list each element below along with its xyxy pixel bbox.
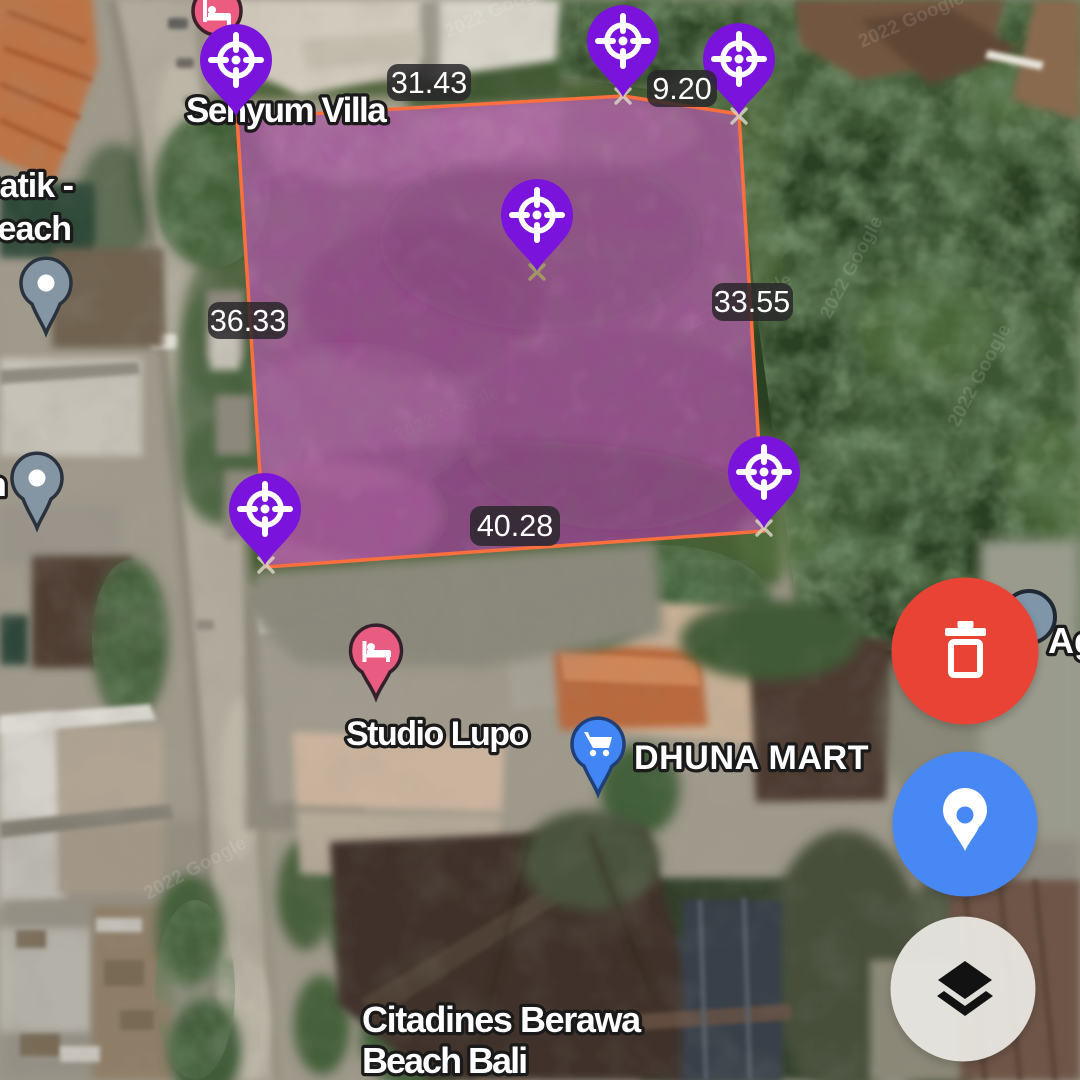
svg-text:9.20: 9.20	[652, 72, 711, 106]
svg-text:33.55: 33.55	[714, 285, 790, 319]
svg-text:n: n	[0, 466, 7, 504]
svg-text:DHUNA MART: DHUNA MART	[634, 739, 869, 777]
svg-text:Beach: Beach	[0, 210, 71, 248]
svg-text:31.43: 31.43	[391, 66, 467, 100]
svg-text:Citadines Berawa: Citadines Berawa	[362, 999, 642, 1040]
svg-text:Batik -: Batik -	[0, 167, 73, 205]
svg-text:36.33: 36.33	[210, 304, 286, 338]
svg-text:Ag: Ag	[1048, 620, 1080, 661]
svg-text:Studio Lupo: Studio Lupo	[346, 715, 529, 753]
svg-text:Senyum Villa: Senyum Villa	[186, 91, 387, 130]
svg-text:Beach Bali: Beach Bali	[362, 1040, 526, 1080]
svg-text:40.28: 40.28	[477, 509, 553, 543]
